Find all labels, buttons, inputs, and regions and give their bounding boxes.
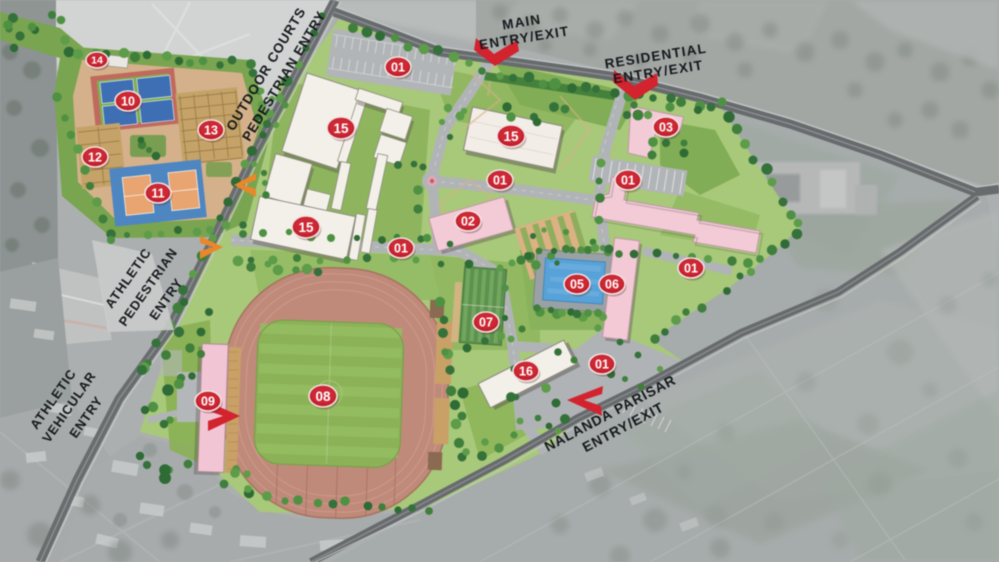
svg-text:07: 07 [479,316,493,330]
svg-text:09: 09 [201,395,215,409]
svg-text:01: 01 [391,61,405,75]
svg-text:14: 14 [91,55,103,67]
svg-text:02: 02 [461,215,475,229]
svg-text:15: 15 [503,129,519,144]
svg-text:08: 08 [315,389,331,404]
svg-text:12: 12 [88,151,102,165]
svg-text:01: 01 [493,174,507,188]
svg-text:01: 01 [684,262,698,276]
svg-text:01: 01 [394,242,408,256]
svg-text:05: 05 [570,278,584,292]
svg-text:03: 03 [659,121,673,135]
svg-text:15: 15 [298,220,314,235]
svg-text:13: 13 [204,124,218,138]
svg-text:11: 11 [151,187,164,201]
svg-text:01: 01 [621,174,635,188]
svg-text:10: 10 [121,95,135,109]
svg-text:01: 01 [595,358,609,372]
svg-text:06: 06 [605,278,619,292]
svg-text:15: 15 [333,121,349,136]
svg-text:16: 16 [519,365,533,379]
